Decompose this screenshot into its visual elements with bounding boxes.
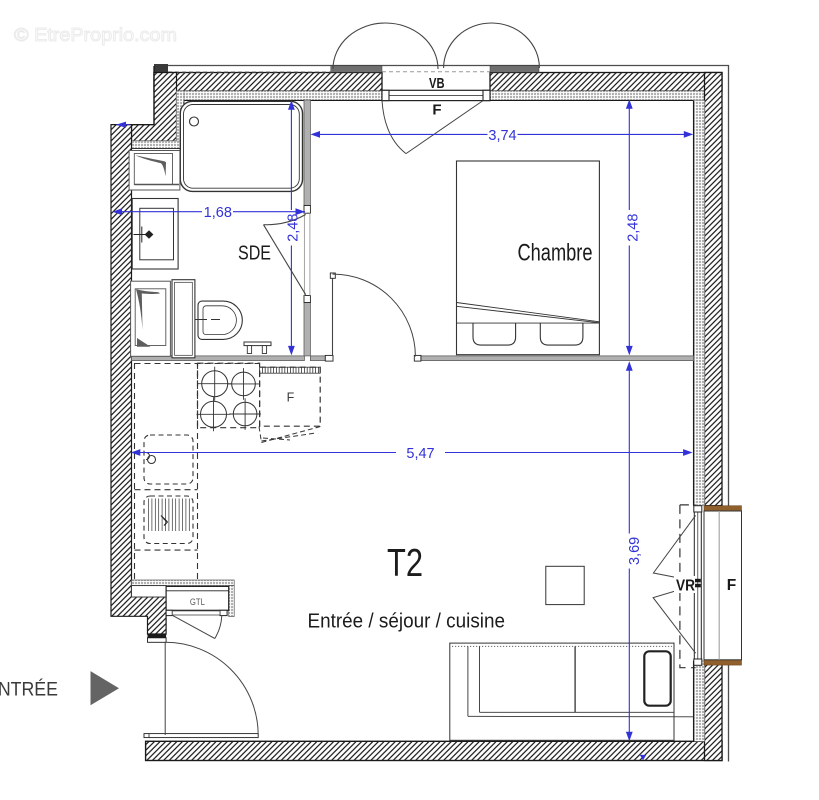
svg-text:2,48: 2,48 (286, 214, 302, 242)
svg-text:F: F (727, 577, 736, 594)
svg-text:VR: VR (676, 578, 695, 595)
svg-text:SDE: SDE (238, 242, 271, 265)
svg-text:GTL: GTL (190, 597, 205, 608)
svg-text:T2: T2 (387, 542, 423, 585)
svg-text:Chambre: Chambre (518, 240, 593, 267)
svg-text:3,69: 3,69 (627, 537, 643, 565)
svg-text:Entrée / séjour / cuisine: Entrée / séjour / cuisine (308, 610, 506, 633)
svg-text:F: F (432, 102, 441, 119)
svg-text:5,47: 5,47 (406, 446, 434, 462)
svg-text:VB: VB (429, 75, 445, 92)
svg-text:F: F (287, 391, 295, 405)
svg-text:1,68: 1,68 (204, 205, 232, 221)
svg-text:3,74: 3,74 (488, 128, 516, 144)
svg-text:2,48: 2,48 (626, 214, 642, 242)
svg-text:© EtreProprio.com: © EtreProprio.com (14, 24, 177, 45)
svg-text:ENTRÉE: ENTRÉE (0, 678, 58, 701)
